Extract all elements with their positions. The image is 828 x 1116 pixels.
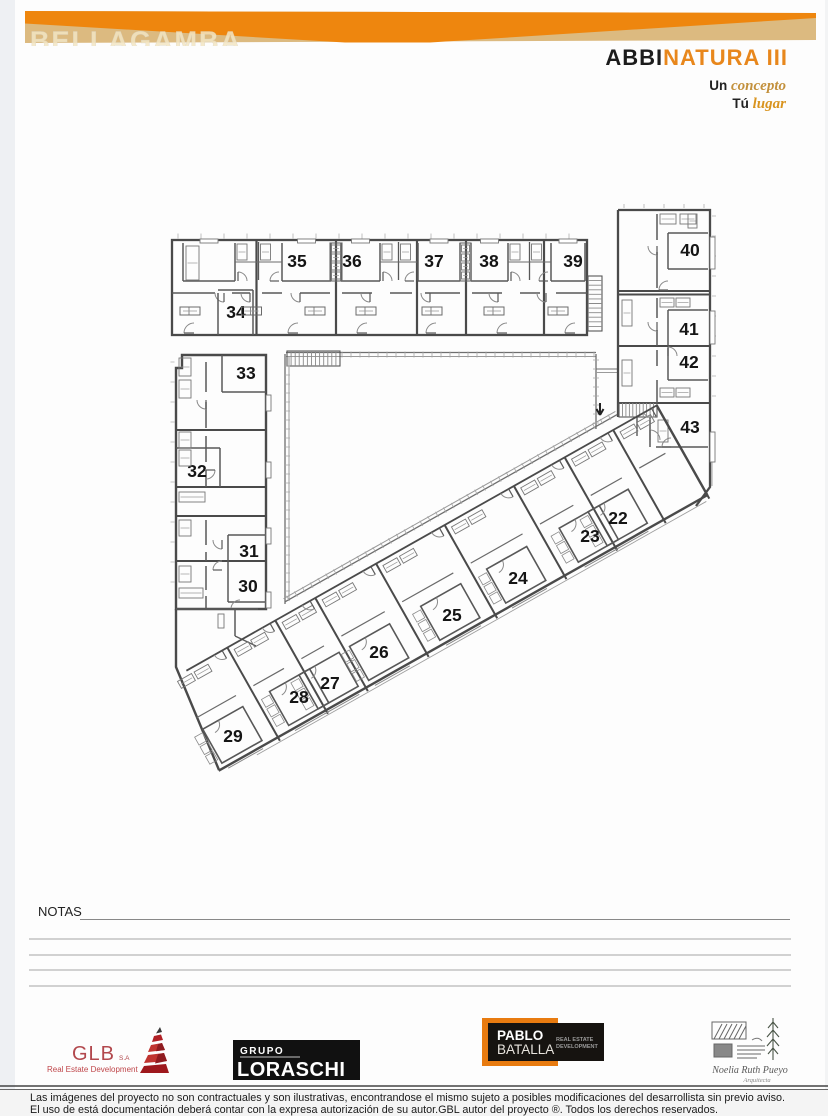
svg-text:ABBINATURA III: ABBINATURA III: [605, 45, 788, 70]
svg-text:Noelia Ruth Pueyo: Noelia Ruth Pueyo: [711, 1065, 788, 1076]
svg-text:PABLO: PABLO: [497, 1028, 543, 1043]
svg-text:22: 22: [608, 508, 628, 528]
svg-text:LORASCHI: LORASCHI: [237, 1059, 345, 1081]
svg-text:34: 34: [226, 302, 246, 322]
svg-text:32: 32: [187, 461, 207, 481]
svg-text:26: 26: [369, 642, 389, 662]
svg-text:36: 36: [342, 251, 362, 271]
svg-text:BELLAGAMBA: BELLAGAMBA: [30, 26, 242, 56]
svg-text:24: 24: [508, 568, 528, 588]
svg-text:30: 30: [238, 576, 258, 596]
svg-text:GLB: GLB: [72, 1043, 115, 1065]
svg-text:23: 23: [580, 526, 600, 546]
svg-text:Un concepto: Un concepto: [709, 78, 786, 94]
svg-text:28: 28: [289, 687, 309, 707]
svg-text:DEVELOPMENT: DEVELOPMENT: [556, 1044, 599, 1050]
svg-text:37: 37: [424, 251, 443, 271]
svg-text:Arquitecta: Arquitecta: [742, 1077, 770, 1084]
svg-text:41: 41: [679, 319, 699, 339]
svg-text:39: 39: [563, 251, 583, 271]
svg-text:S.A: S.A: [119, 1055, 130, 1062]
svg-text:REAL ESTATE: REAL ESTATE: [556, 1037, 594, 1043]
svg-text:35: 35: [287, 251, 307, 271]
svg-text:BATALLA: BATALLA: [497, 1042, 554, 1057]
svg-text:Real Estate Development: Real Estate Development: [47, 1065, 138, 1074]
svg-text:31: 31: [239, 541, 259, 561]
svg-text:38: 38: [479, 251, 499, 271]
svg-text:40: 40: [680, 240, 700, 260]
svg-text:27: 27: [320, 673, 339, 693]
svg-text:42: 42: [679, 352, 699, 372]
svg-text:GRUPO: GRUPO: [240, 1046, 284, 1057]
svg-text:29: 29: [223, 726, 243, 746]
svg-text:El uso de está documentación d: El uso de está documentación deberá cont…: [30, 1104, 718, 1116]
svg-text:Tú lugar: Tú lugar: [732, 96, 786, 112]
svg-text:NOTAS: NOTAS: [38, 904, 82, 919]
svg-text:43: 43: [680, 417, 700, 437]
svg-text:33: 33: [236, 363, 256, 383]
svg-text:25: 25: [442, 605, 462, 625]
svg-text:Las imágenes del proyecto no s: Las imágenes del proyecto no son contrac…: [30, 1092, 785, 1104]
